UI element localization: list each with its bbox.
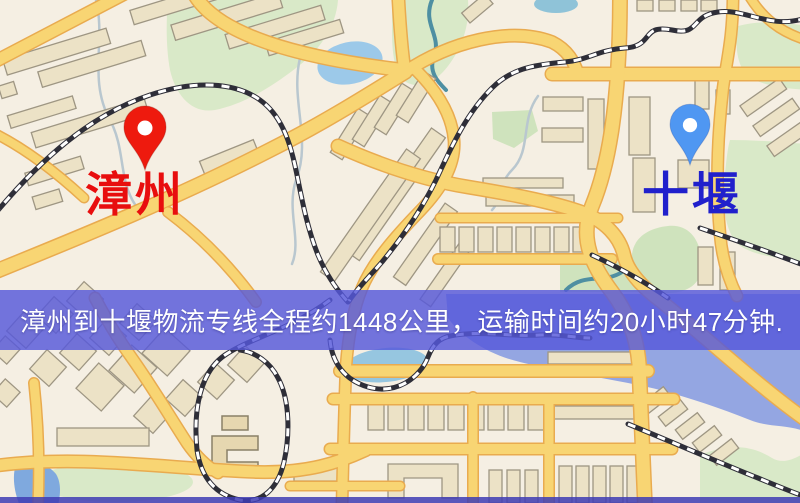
- route-info-banner: 漳州到十堰物流专线全程约1448公里，运输时间约20小时47分钟.: [0, 290, 800, 350]
- route-info-text: 漳州到十堰物流专线全程约1448公里，运输时间约20小时47分钟.: [20, 302, 783, 339]
- destination-city-label: 十堰: [642, 173, 742, 220]
- map-image: [0, 0, 800, 503]
- bottom-edge-strip: [0, 497, 800, 503]
- origin-city-label: 漳州: [85, 173, 185, 220]
- map-canvas: 漳州 十堰 漳州到十堰物流专线全程约1448公里，运输时间约20小时47分钟.: [0, 0, 800, 503]
